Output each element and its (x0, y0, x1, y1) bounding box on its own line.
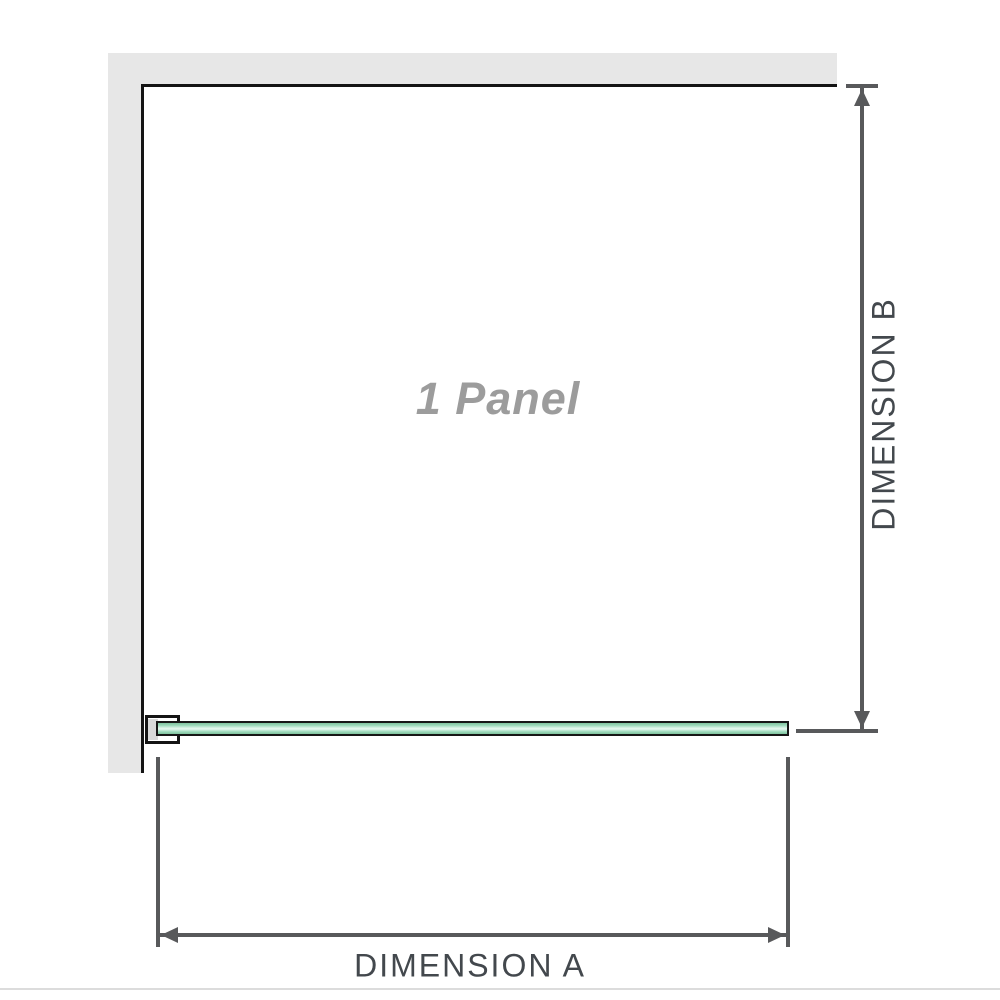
dim-a-arrow-left-icon (161, 927, 178, 943)
dim-b-extension-bottom (796, 729, 878, 733)
dim-b-label: DIMENSION B (866, 297, 903, 531)
panel-left-edge (141, 84, 144, 773)
diagram-canvas: 1 Panel DIMENSION A DIMENSION B (0, 0, 1000, 1000)
wall-left (108, 53, 141, 773)
dim-a-label: DIMENSION A (354, 948, 586, 985)
dim-b-line (860, 87, 864, 730)
dim-a-arrow-right-icon (768, 927, 785, 943)
dim-b-arrow-up-icon (854, 89, 870, 106)
footer-rule (0, 988, 1000, 990)
dim-a-line (160, 933, 786, 937)
dim-b-arrow-down-icon (854, 711, 870, 728)
dim-a-extension-left (156, 757, 160, 947)
panel-label: 1 Panel (416, 373, 581, 425)
wall-top (108, 53, 837, 84)
panel-top-edge (141, 84, 837, 87)
glass-panel-bar (156, 721, 789, 736)
dim-a-extension-right (786, 757, 790, 947)
